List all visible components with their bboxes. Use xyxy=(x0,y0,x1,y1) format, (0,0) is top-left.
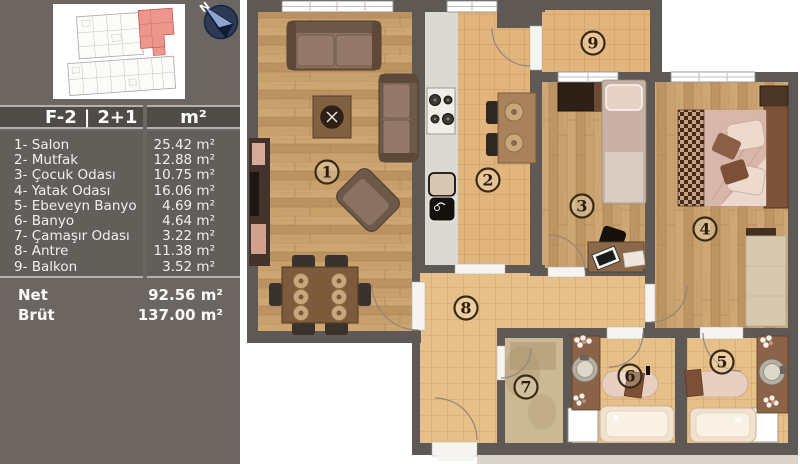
nightstand xyxy=(760,86,788,106)
room-list-item: 6- Banyo4.64 m² xyxy=(0,214,240,229)
room-list-item: 4- Yatak Odası16.06 m² xyxy=(0,184,240,199)
compass-icon: N xyxy=(198,0,246,48)
unit-area-header: m² xyxy=(147,105,240,129)
unit-type: 2+1 xyxy=(97,107,137,128)
dining-set xyxy=(269,255,371,335)
room-label-9: 9 xyxy=(582,32,605,55)
room-list-item: 2- Mutfak12.88 m² xyxy=(0,153,240,168)
svg-text:9: 9 xyxy=(587,34,598,53)
kitchen-window xyxy=(447,1,497,12)
brut-value: 137.00 m² xyxy=(110,306,240,326)
floorplan-page: 1 2 3 4 5 6 7 8 9 xyxy=(0,0,800,464)
room-label-1: 1 xyxy=(316,161,339,184)
sofa-small xyxy=(379,74,418,162)
room-label-2: 2 xyxy=(477,169,500,192)
room-list: 1- Salon25.42 m² 2- Mutfak12.88 m² 3- Ço… xyxy=(0,131,240,278)
area-unit-label: m² xyxy=(180,107,207,128)
room-label-8: 8 xyxy=(455,297,478,320)
room-list-item: 9- Balkon3.52 m² xyxy=(0,260,240,275)
net-label: Net xyxy=(0,286,110,306)
room-list-item: 3- Çocuk Odası10.75 m² xyxy=(0,168,240,183)
room-list-item: 5- Ebeveyn Banyo4.69 m² xyxy=(0,199,240,214)
svg-text:3: 3 xyxy=(576,197,587,216)
svg-text:5: 5 xyxy=(716,353,727,372)
unit-code: F-2 xyxy=(45,107,77,128)
room-label-3: 3 xyxy=(571,195,594,218)
svg-text:7: 7 xyxy=(520,378,531,397)
stove xyxy=(427,88,455,134)
brut-label: Brüt xyxy=(0,306,110,326)
room-label-7: 7 xyxy=(515,376,538,399)
coffee-table xyxy=(313,96,351,138)
room-label-4: 4 xyxy=(694,218,717,241)
bedroom-window xyxy=(671,72,755,82)
unit-code-divider: | xyxy=(84,107,91,128)
unit-code-bar: F-2 | 2+1 xyxy=(0,105,143,129)
bathroom-niche xyxy=(568,408,598,442)
brut-area-row: Brüt 137.00 m² xyxy=(0,306,240,326)
svg-text:1: 1 xyxy=(321,163,332,182)
bathtub xyxy=(690,408,756,442)
room-list-item: 7- Çamaşır Odası3.22 m² xyxy=(0,229,240,244)
double-bed xyxy=(678,110,766,206)
svg-text:2: 2 xyxy=(482,171,493,190)
totals: Net 92.56 m² Brüt 137.00 m² xyxy=(0,286,240,325)
room-list-item: 1- Salon25.42 m² xyxy=(0,138,240,153)
svg-text:6: 6 xyxy=(624,367,635,386)
net-value: 92.56 m² xyxy=(110,286,240,306)
bathtub xyxy=(600,406,674,442)
svg-text:4: 4 xyxy=(699,220,710,239)
svg-text:8: 8 xyxy=(460,299,471,318)
room-label-5: 5 xyxy=(711,351,734,374)
site-plan-sketch xyxy=(53,4,185,99)
kitchen-counter-strip xyxy=(425,12,458,265)
highlighted-unit xyxy=(138,8,175,48)
closet xyxy=(746,236,786,326)
room-label-6: 6 xyxy=(619,365,642,388)
room-list-item: 8- Antre11.38 m² xyxy=(0,244,240,259)
site-plan-thumbnail xyxy=(53,4,185,99)
sink xyxy=(429,173,455,221)
headboard xyxy=(764,106,788,208)
sofa-large xyxy=(287,21,381,70)
legend-sidebar: F-2 | 2+1 m² 1- Salon25.42 m² 2- Mutfak1… xyxy=(0,0,240,464)
single-bed xyxy=(602,80,646,204)
net-area-row: Net 92.56 m² xyxy=(0,286,240,306)
salon-window xyxy=(282,1,393,12)
